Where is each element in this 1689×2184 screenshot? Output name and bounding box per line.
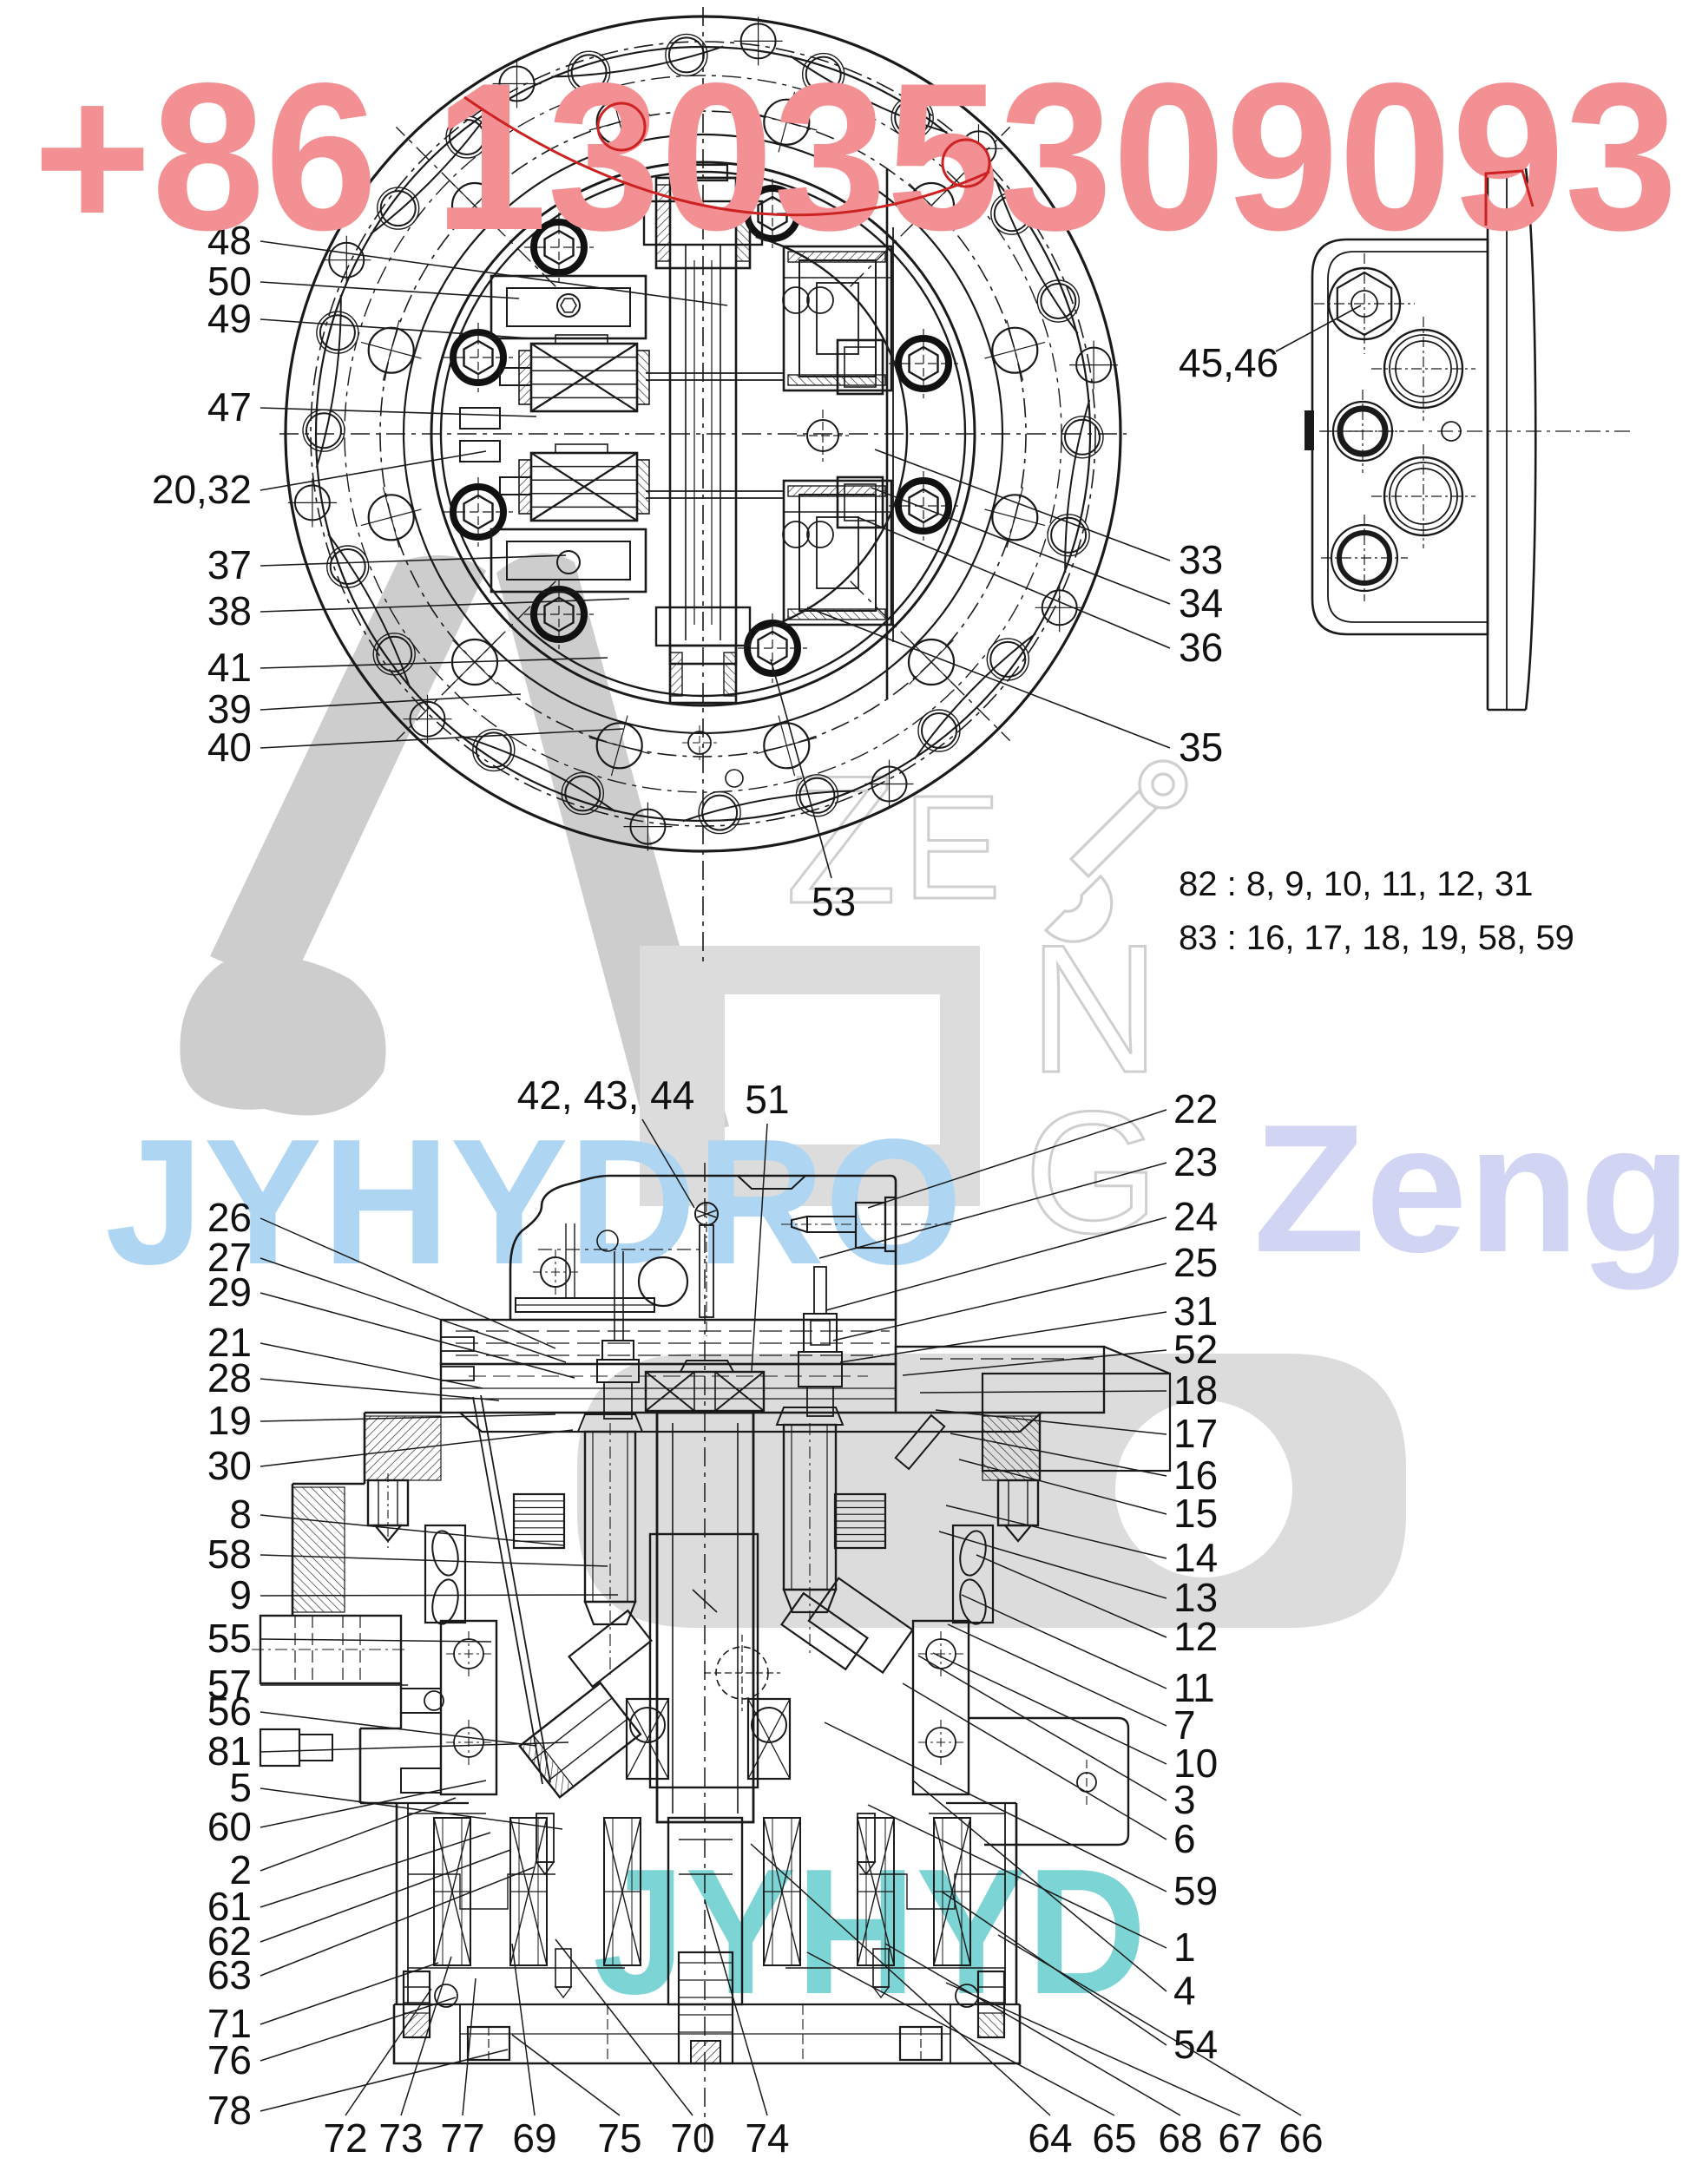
svg-text:8: 8 [229, 1492, 252, 1537]
svg-text:63: 63 [207, 1952, 252, 1997]
svg-text:35: 35 [1179, 725, 1223, 770]
svg-text:38: 38 [207, 588, 252, 633]
svg-text:14: 14 [1173, 1535, 1218, 1580]
svg-text:41: 41 [207, 645, 252, 690]
svg-text:33: 33 [1179, 537, 1223, 582]
svg-text:20,32: 20,32 [152, 467, 252, 512]
svg-text:42, 43, 44: 42, 43, 44 [517, 1072, 695, 1118]
svg-text:24: 24 [1173, 1194, 1218, 1239]
svg-text:55: 55 [207, 1616, 252, 1661]
svg-text:18: 18 [1173, 1367, 1218, 1413]
svg-text:9: 9 [229, 1572, 252, 1617]
svg-text:40: 40 [207, 725, 252, 770]
svg-text:4: 4 [1173, 1968, 1196, 2013]
svg-text:52: 52 [1173, 1327, 1218, 1372]
svg-text:37: 37 [207, 542, 252, 587]
svg-text:6: 6 [1173, 1816, 1196, 1861]
svg-text:73: 73 [378, 2115, 423, 2161]
svg-text:28: 28 [207, 1355, 252, 1400]
svg-text:75: 75 [597, 2115, 641, 2161]
svg-text:60: 60 [207, 1804, 252, 1849]
svg-text:64: 64 [1028, 2115, 1072, 2161]
svg-text:51: 51 [745, 1077, 789, 1122]
svg-text:Zeng: Zeng [1253, 1086, 1689, 1290]
svg-text:70: 70 [670, 2115, 714, 2161]
svg-text:19: 19 [207, 1398, 252, 1443]
svg-text:72: 72 [323, 2115, 367, 2161]
svg-text:69: 69 [512, 2115, 556, 2161]
svg-text:17: 17 [1173, 1411, 1218, 1456]
svg-text:58: 58 [207, 1531, 252, 1577]
svg-text:78: 78 [207, 2088, 252, 2133]
svg-text:66: 66 [1278, 2115, 1323, 2161]
svg-text:25: 25 [1173, 1240, 1218, 1285]
svg-text:36: 36 [1179, 625, 1223, 670]
svg-text:53: 53 [812, 879, 856, 924]
svg-text:45,46: 45,46 [1179, 340, 1278, 385]
svg-text:12: 12 [1173, 1614, 1218, 1659]
svg-text:E: E [903, 765, 1001, 930]
svg-text:22: 22 [1173, 1086, 1218, 1131]
svg-text:76: 76 [207, 2037, 252, 2082]
svg-text:82 : 8, 9, 10, 11, 12, 31: 82 : 8, 9, 10, 11, 12, 31 [1179, 865, 1533, 903]
svg-text:67: 67 [1218, 2115, 1262, 2161]
svg-text:49: 49 [207, 296, 252, 341]
svg-text:30: 30 [207, 1443, 252, 1488]
svg-text:1: 1 [1173, 1925, 1196, 1970]
svg-text:83 : 16, 17, 18, 19, 58, 59: 83 : 16, 17, 18, 19, 58, 59 [1179, 919, 1574, 957]
svg-text:56: 56 [207, 1689, 252, 1734]
svg-text:34: 34 [1179, 580, 1223, 626]
svg-text:74: 74 [745, 2115, 789, 2161]
svg-text:77: 77 [440, 2115, 484, 2161]
svg-text:59: 59 [1173, 1868, 1218, 1913]
svg-text:26: 26 [207, 1195, 252, 1240]
svg-text:G: G [1024, 1076, 1160, 1269]
svg-text:54: 54 [1173, 2022, 1218, 2067]
svg-text:23: 23 [1173, 1139, 1218, 1184]
svg-text:29: 29 [207, 1269, 252, 1315]
svg-text:68: 68 [1158, 2115, 1202, 2161]
svg-text:+86 13035309093: +86 13035309093 [33, 40, 1678, 274]
svg-text:47: 47 [207, 384, 252, 430]
svg-text:15: 15 [1173, 1491, 1218, 1536]
svg-text:65: 65 [1092, 2115, 1136, 2161]
